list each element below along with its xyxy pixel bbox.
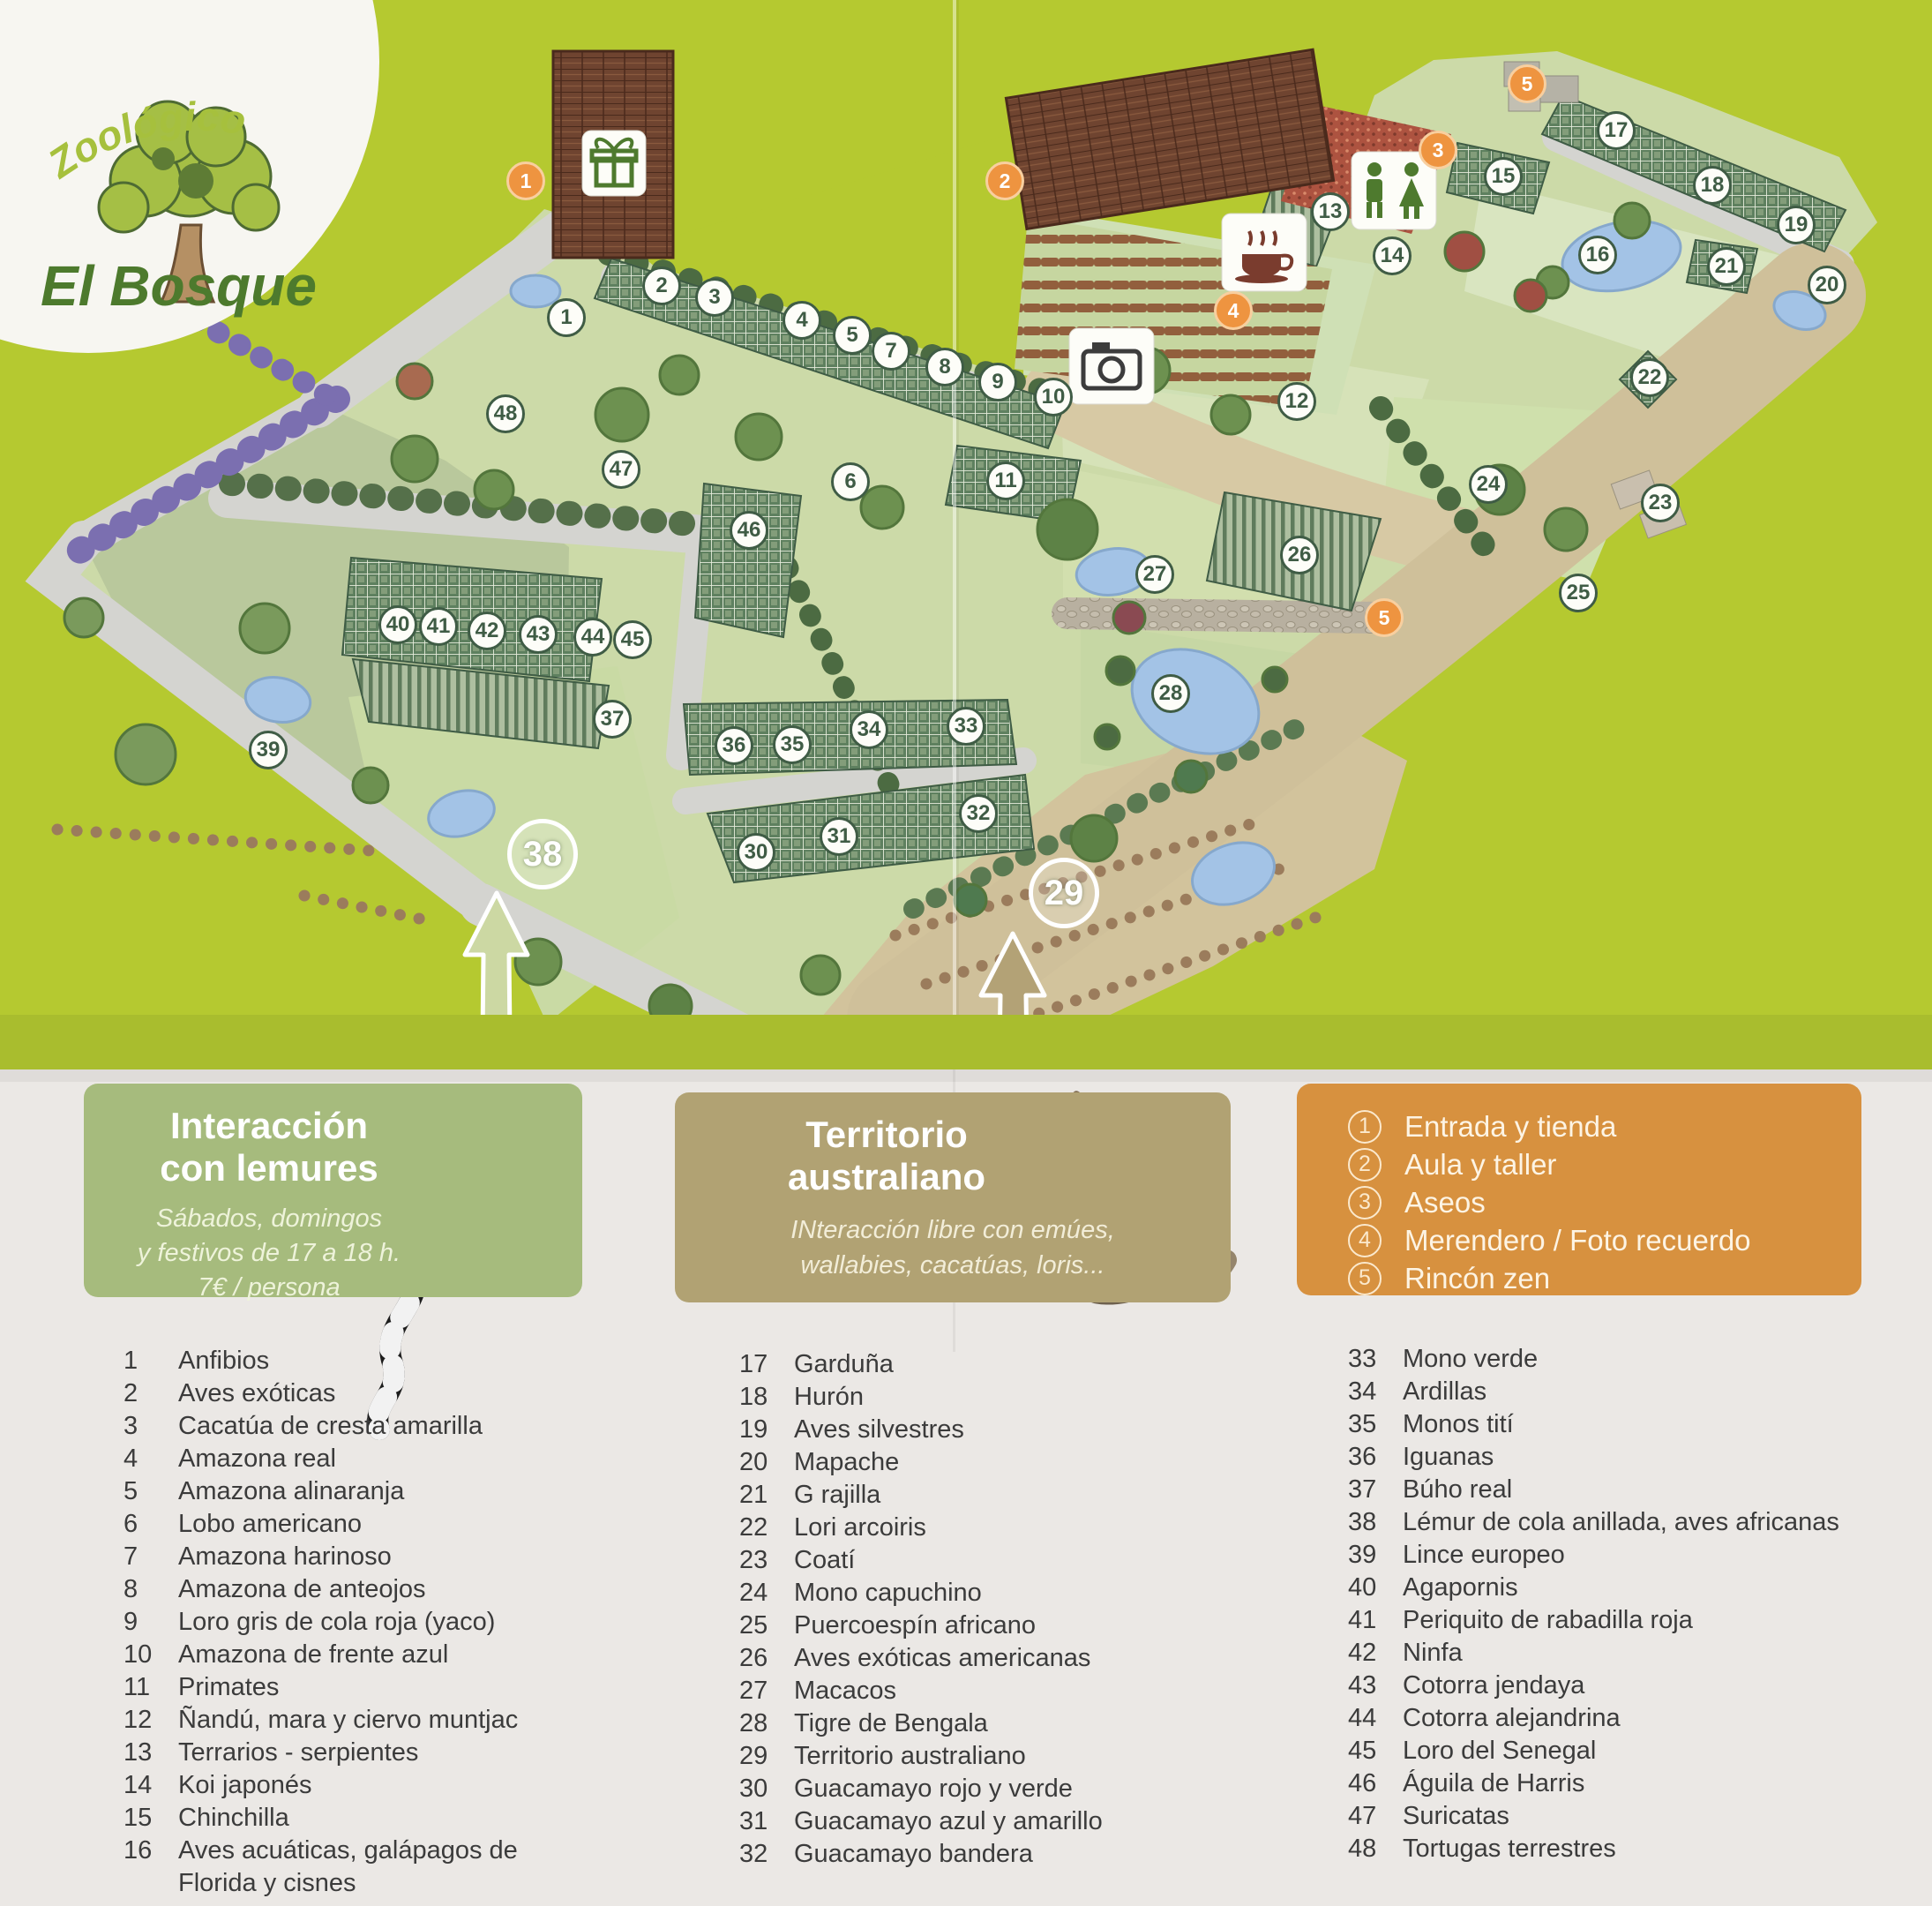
- facility-marker-number: 4: [1228, 299, 1239, 323]
- legend-item-number: 45: [1348, 1735, 1403, 1767]
- facility-row: 2 Aula y taller: [1348, 1148, 1751, 1181]
- enclosure-marker: 17: [1597, 111, 1636, 150]
- paper-fold: [953, 0, 959, 1069]
- enclosure-marker: 22: [1630, 358, 1669, 397]
- enclosure-marker-number: 5: [846, 323, 857, 348]
- legend-item-number: 27: [739, 1675, 794, 1707]
- enclosure-marker: 45: [613, 620, 652, 659]
- facilities-legend-box: 1 Entrada y tienda 2 Aula y taller 3 Ase…: [1297, 1084, 1861, 1295]
- enclosure-marker: 42: [468, 612, 506, 650]
- legend-item-label: Aves exóticas americanas: [794, 1642, 1217, 1675]
- legend-item: 18 Hurón: [739, 1381, 1217, 1414]
- legend-item-number: 6: [124, 1508, 178, 1541]
- legend-item-number: 41: [1348, 1604, 1403, 1637]
- enclosure-marker-number: 40: [386, 612, 410, 637]
- legend-item: 9 Loro gris de cola roja (yaco): [124, 1606, 602, 1639]
- enclosure-marker-number: 45: [621, 627, 645, 652]
- facility-row: 5 Rincón zen: [1348, 1262, 1751, 1294]
- facility-marker-number: 5: [1522, 72, 1533, 96]
- legend-item-label: Cotorra jendaya: [1403, 1670, 1914, 1702]
- enclosure-marker: 33: [947, 707, 985, 746]
- facilities-list: 1 Entrada y tienda 2 Aula y taller 3 Ase…: [1348, 1110, 1751, 1300]
- legend-item: 17 Garduña: [739, 1348, 1217, 1381]
- legend-item-number: 34: [1348, 1376, 1403, 1408]
- facility-label: Rincón zen: [1404, 1262, 1550, 1295]
- enclosure-marker-number: 11: [994, 469, 1016, 493]
- facility-marker: 4: [1214, 291, 1253, 330]
- facility-marker-number: 1: [520, 169, 532, 193]
- legend-item-number: 40: [1348, 1572, 1403, 1604]
- legend-item-label: Mono capuchino: [794, 1577, 1217, 1610]
- legend-item-number: 3: [124, 1410, 178, 1443]
- legend-item-number: 19: [739, 1414, 794, 1446]
- legend-item: 8 Amazona de anteojos: [124, 1573, 602, 1606]
- facility-number-badge: 1: [1348, 1110, 1382, 1144]
- legend-item-label: Terrarios - serpientes: [178, 1737, 602, 1769]
- legend-item-label: Monos tití: [1403, 1408, 1914, 1441]
- australian-territory-box: Territorio australiano INteracción libre…: [675, 1092, 1231, 1302]
- enclosure-marker: 3: [695, 278, 734, 317]
- legend-item: 14 Koi japonés: [124, 1769, 602, 1802]
- enclosure-marker: 7: [872, 332, 910, 371]
- gift-icon: [582, 131, 646, 196]
- enclosure-marker: 41: [419, 607, 458, 646]
- legend-item-number: 22: [739, 1512, 794, 1544]
- facility-row: 4 Merendero / Foto recuerdo: [1348, 1224, 1751, 1257]
- legend-item-label: Loro del Senegal: [1403, 1735, 1914, 1767]
- enclosure-marker-number: 48: [494, 401, 518, 426]
- area-marker-large: 29: [1029, 858, 1099, 928]
- facility-label: Entrada y tienda: [1404, 1110, 1616, 1144]
- legend-item-label: Guacamayo rojo y verde: [794, 1773, 1217, 1805]
- australian-box-description: INteracción libre con emúes, wallabies, …: [675, 1212, 1231, 1283]
- legend-item-label: Garduña: [794, 1348, 1217, 1381]
- legend-item-number: 28: [739, 1707, 794, 1740]
- legend-column-1: 1 Anfibios 2 Aves exóticas 3 Cacatúa de …: [124, 1345, 602, 1900]
- enclosure-marker: 14: [1373, 236, 1412, 275]
- legend-item-label: Hurón: [794, 1381, 1217, 1414]
- enclosure-marker-number: 20: [1816, 273, 1839, 297]
- legend-item-number: 8: [124, 1573, 178, 1606]
- enclosure-marker-number: 47: [610, 457, 633, 482]
- legend-item: 47 Suricatas: [1348, 1800, 1914, 1833]
- legend-item-label: Búho real: [1403, 1474, 1914, 1506]
- legend-item-number: 36: [1348, 1441, 1403, 1474]
- legend-item-number: 7: [124, 1541, 178, 1573]
- facility-marker: 3: [1419, 131, 1457, 169]
- lemur-box-price: 7€ / persona: [84, 1271, 454, 1305]
- facility-number-badge: 4: [1348, 1224, 1382, 1257]
- legend-item-label: Ñandú, mara y ciervo muntjac: [178, 1704, 602, 1737]
- legend-item-number: 15: [124, 1802, 178, 1835]
- enclosure-marker: 10: [1034, 378, 1073, 416]
- legend-item-number: 32: [739, 1838, 794, 1871]
- enclosure-marker-number: 33: [955, 714, 978, 739]
- legend-item-label: Iguanas: [1403, 1441, 1914, 1474]
- enclosure-marker-number: 15: [1492, 164, 1516, 189]
- legend-item-number: 14: [124, 1769, 178, 1802]
- legend-item-number: 25: [739, 1610, 794, 1642]
- enclosure-marker: 32: [959, 794, 998, 833]
- enclosure-marker: 47: [602, 450, 640, 489]
- enclosure-marker: 21: [1707, 247, 1746, 286]
- legend-item-number: 39: [1348, 1539, 1403, 1572]
- legend-item: 7 Amazona harinoso: [124, 1541, 602, 1573]
- enclosure-marker-number: 24: [1477, 472, 1501, 497]
- legend-item-label: Amazona real: [178, 1443, 602, 1475]
- lemur-box-schedule: Sábados, domingos y festivos de 17 a 18 …: [84, 1202, 454, 1305]
- enclosure-marker: 34: [850, 710, 888, 749]
- enclosure-marker: 5: [833, 316, 872, 355]
- legend-item-label: Ardillas: [1403, 1376, 1914, 1408]
- legend-item-label: Macacos: [794, 1675, 1217, 1707]
- legend-item: 29 Territorio australiano: [739, 1740, 1217, 1773]
- legend-item-label: Territorio australiano: [794, 1740, 1217, 1773]
- facility-row: 1 Entrada y tienda: [1348, 1110, 1751, 1143]
- legend-item: 13 Terrarios - serpientes: [124, 1737, 602, 1769]
- legend-item-number: 26: [739, 1642, 794, 1675]
- facility-label: Merendero / Foto recuerdo: [1404, 1224, 1751, 1257]
- legend-item: 16 Aves acuáticas, galápagos de Florida …: [124, 1835, 602, 1900]
- enclosure-marker: 4: [783, 301, 821, 340]
- facility-marker: 2: [985, 161, 1024, 200]
- legend-item-label: Amazona de anteojos: [178, 1573, 602, 1606]
- legend-item-label: Lémur de cola anillada, aves africanas: [1403, 1506, 1914, 1539]
- enclosure-marker: 48: [486, 394, 525, 433]
- legend-item-number: 24: [739, 1577, 794, 1610]
- legend-item-label: Cacatúa de cresta amarilla: [178, 1410, 602, 1443]
- enclosure-marker-number: 34: [857, 717, 881, 742]
- enclosure-marker: 23: [1641, 484, 1680, 522]
- legend-item-number: 33: [1348, 1343, 1403, 1376]
- legend-item-label: Aves exóticas: [178, 1377, 602, 1410]
- enclosure-marker-number: 21: [1715, 254, 1739, 279]
- lemur-interaction-box: Interacción con lemures Sábados, domingo…: [84, 1084, 582, 1297]
- legend-item-number: 47: [1348, 1800, 1403, 1833]
- enclosure-marker-number: 36: [723, 733, 746, 758]
- facility-marker: 5: [1365, 598, 1404, 637]
- legend-item: 45 Loro del Senegal: [1348, 1735, 1914, 1767]
- enclosure-marker-number: 16: [1586, 243, 1610, 267]
- enclosure-marker: 25: [1559, 574, 1598, 612]
- legend-column-3: 33 Mono verde 34 Ardillas 35 Monos tití …: [1348, 1343, 1914, 1865]
- enclosure-marker: 24: [1469, 465, 1508, 504]
- australian-box-title: Territorio australiano: [675, 1114, 1098, 1198]
- legend-item-label: Coatí: [794, 1544, 1217, 1577]
- legend-item: 44 Cotorra alejandrina: [1348, 1702, 1914, 1735]
- enclosure-marker-number: 27: [1143, 562, 1167, 587]
- legend-item-number: 18: [739, 1381, 794, 1414]
- legend-item-label: Aves silvestres: [794, 1414, 1217, 1446]
- area-marker-large: 38: [507, 819, 578, 889]
- enclosure-marker-number: 31: [827, 824, 851, 849]
- legend-item: 10 Amazona de frente azul: [124, 1639, 602, 1671]
- legend-item-label: G rajilla: [794, 1479, 1217, 1512]
- legend-item-number: 10: [124, 1639, 178, 1671]
- legend-item: 20 Mapache: [739, 1446, 1217, 1479]
- legend-item: 23 Coatí: [739, 1544, 1217, 1577]
- enclosure-marker-number: 18: [1701, 173, 1725, 198]
- enclosure-marker-number: 30: [745, 840, 768, 865]
- legend-item-number: 29: [739, 1740, 794, 1773]
- facility-marker-number: 2: [1000, 169, 1011, 193]
- facility-marker-number: 5: [1379, 606, 1390, 630]
- legend-item-number: 4: [124, 1443, 178, 1475]
- legend-item-number: 9: [124, 1606, 178, 1639]
- legend-item-label: Guacamayo bandera: [794, 1838, 1217, 1871]
- camera-icon: [1069, 328, 1154, 404]
- enclosure-marker: 43: [519, 615, 558, 654]
- enclosure-marker: 31: [820, 817, 858, 856]
- legend-item-number: 46: [1348, 1767, 1403, 1800]
- enclosure-marker-number: 7: [885, 339, 896, 364]
- facility-label: Aseos: [1404, 1186, 1486, 1219]
- enclosure-marker: 26: [1280, 536, 1319, 574]
- legend-item: 32 Guacamayo bandera: [739, 1838, 1217, 1871]
- legend-item: 19 Aves silvestres: [739, 1414, 1217, 1446]
- enclosure-marker-number: 10: [1042, 385, 1066, 409]
- enclosure-marker: 36: [715, 726, 753, 765]
- enclosure-marker-number: 13: [1319, 199, 1343, 224]
- legend-item: 33 Mono verde: [1348, 1343, 1914, 1376]
- legend-item: 36 Iguanas: [1348, 1441, 1914, 1474]
- enclosure-marker-number: 25: [1567, 581, 1591, 605]
- enclosure-marker: 11: [986, 461, 1025, 500]
- legend-item-label: Agapornis: [1403, 1572, 1914, 1604]
- logo-name-text: El Bosque: [41, 254, 317, 318]
- legend-item-number: 21: [739, 1479, 794, 1512]
- legend-item-label: Puercoespín africano: [794, 1610, 1217, 1642]
- legend-item: 34 Ardillas: [1348, 1376, 1914, 1408]
- legend-item-label: Guacamayo azul y amarillo: [794, 1805, 1217, 1838]
- legend-item-label: Mono verde: [1403, 1343, 1914, 1376]
- legend-item: 3 Cacatúa de cresta amarilla: [124, 1410, 602, 1443]
- legend-item: 35 Monos tití: [1348, 1408, 1914, 1441]
- enclosure-marker: 28: [1151, 674, 1190, 713]
- enclosure-marker-number: 12: [1285, 389, 1309, 414]
- enclosure-marker-number: 19: [1785, 213, 1808, 237]
- enclosure-marker: 1: [547, 298, 586, 337]
- legend-item-number: 35: [1348, 1408, 1403, 1441]
- enclosure-marker: 20: [1808, 266, 1846, 304]
- enclosure-marker: 46: [730, 511, 768, 550]
- legend-item: 40 Agapornis: [1348, 1572, 1914, 1604]
- enclosure-marker: 15: [1484, 157, 1523, 196]
- enclosure-marker-number: 32: [967, 801, 991, 826]
- legend-item-label: Águila de Harris: [1403, 1767, 1914, 1800]
- legend-item-number: 16: [124, 1835, 178, 1867]
- legend-item-number: 42: [1348, 1637, 1403, 1670]
- legend-item: 43 Cotorra jendaya: [1348, 1670, 1914, 1702]
- enclosure-marker: 18: [1693, 166, 1732, 205]
- enclosure-marker-number: 22: [1638, 365, 1662, 390]
- legend-item-label: Aves acuáticas, galápagos de Florida y c…: [178, 1835, 602, 1900]
- facility-number-badge: 3: [1348, 1186, 1382, 1219]
- enclosure-marker: 12: [1277, 382, 1316, 421]
- legend-item-number: 13: [124, 1737, 178, 1769]
- enclosure-marker-number: 46: [738, 518, 761, 543]
- facility-marker-number: 3: [1433, 139, 1444, 162]
- legend-item: 38 Lémur de cola anillada, aves africana…: [1348, 1506, 1914, 1539]
- enclosure-marker-number: 41: [427, 614, 451, 639]
- legend-item-label: Amazona de frente azul: [178, 1639, 602, 1671]
- legend-item-number: 38: [1348, 1506, 1403, 1539]
- legend-item-label: Lobo americano: [178, 1508, 602, 1541]
- legend-item-label: Loro gris de cola roja (yaco): [178, 1606, 602, 1639]
- lemur-box-title: Interacción con lemures: [84, 1105, 454, 1189]
- legend-item-number: 20: [739, 1446, 794, 1479]
- legend-item: 24 Mono capuchino: [739, 1577, 1217, 1610]
- legend-item-label: Amazona alinaranja: [178, 1475, 602, 1508]
- legend-item: 48 Tortugas terrestres: [1348, 1833, 1914, 1865]
- legend-item: 5 Amazona alinaranja: [124, 1475, 602, 1508]
- legend-item: 31 Guacamayo azul y amarillo: [739, 1805, 1217, 1838]
- enclosure-marker-number: 39: [257, 738, 281, 762]
- facility-marker: 1: [506, 161, 545, 200]
- enclosure-marker-number: 37: [601, 707, 625, 732]
- enclosure-marker: 35: [773, 725, 812, 764]
- coffee-icon: [1222, 214, 1307, 291]
- legend-item: 39 Lince europeo: [1348, 1539, 1914, 1572]
- legend-item-label: Tortugas terrestres: [1403, 1833, 1914, 1865]
- enclosure-marker: 16: [1578, 236, 1617, 274]
- legend-item-number: 43: [1348, 1670, 1403, 1702]
- legend-item: 28 Tigre de Bengala: [739, 1707, 1217, 1740]
- legend-item-number: 30: [739, 1773, 794, 1805]
- facility-marker: 5: [1508, 64, 1546, 103]
- legend-item-label: Periquito de rabadilla roja: [1403, 1604, 1914, 1637]
- area-marker-number: 38: [523, 835, 563, 874]
- enclosure-marker: 6: [831, 462, 870, 501]
- legend-item-number: 1: [124, 1345, 178, 1377]
- legend-item: 27 Macacos: [739, 1675, 1217, 1707]
- zoo-brochure-map: Zoológico El Bosque: [0, 0, 1932, 1906]
- legend-item-number: 2: [124, 1377, 178, 1410]
- legend-item-label: Amazona harinoso: [178, 1541, 602, 1573]
- legend-item-number: 44: [1348, 1702, 1403, 1735]
- legend-item-label: Suricatas: [1403, 1800, 1914, 1833]
- legend-item: 12 Ñandú, mara y ciervo muntjac: [124, 1704, 602, 1737]
- legend-item-number: 23: [739, 1544, 794, 1577]
- legend-item: 1 Anfibios: [124, 1345, 602, 1377]
- enclosure-marker: 39: [249, 731, 288, 769]
- enclosure-marker-number: 26: [1288, 543, 1312, 567]
- legend-item-number: 5: [124, 1475, 178, 1508]
- legend-item: 21 G rajilla: [739, 1479, 1217, 1512]
- legend-item: 25 Puercoespín africano: [739, 1610, 1217, 1642]
- enclosure-marker-number: 17: [1605, 118, 1629, 143]
- legend-item-number: 31: [739, 1805, 794, 1838]
- enclosure-marker-number: 35: [781, 732, 805, 757]
- enclosure-marker-number: 43: [527, 622, 550, 647]
- legend-item: 15 Chinchilla: [124, 1802, 602, 1835]
- legend-item: 46 Águila de Harris: [1348, 1767, 1914, 1800]
- legend-item-label: Cotorra alejandrina: [1403, 1702, 1914, 1735]
- legend-item-label: Lince europeo: [1403, 1539, 1914, 1572]
- enclosure-marker-number: 2: [655, 274, 667, 298]
- legend-item: 11 Primates: [124, 1671, 602, 1704]
- legend-item-label: Primates: [178, 1671, 602, 1704]
- enclosure-marker-number: 1: [560, 305, 572, 330]
- legend-item-number: 17: [739, 1348, 794, 1381]
- legend-item-label: Tigre de Bengala: [794, 1707, 1217, 1740]
- legend-item-number: 37: [1348, 1474, 1403, 1506]
- legend-item-label: Chinchilla: [178, 1802, 602, 1835]
- enclosure-marker: 44: [573, 618, 612, 657]
- enclosure-marker: 40: [378, 605, 417, 644]
- legend-item-label: Ninfa: [1403, 1637, 1914, 1670]
- legend-item: 6 Lobo americano: [124, 1508, 602, 1541]
- enclosure-marker-number: 6: [844, 469, 856, 494]
- enclosure-marker: 9: [978, 363, 1017, 401]
- facility-number-badge: 5: [1348, 1262, 1382, 1295]
- legend-item: 2 Aves exóticas: [124, 1377, 602, 1410]
- legend-item: 41 Periquito de rabadilla roja: [1348, 1604, 1914, 1637]
- enclosure-marker-number: 28: [1159, 681, 1183, 706]
- facility-label: Aula y taller: [1404, 1148, 1556, 1182]
- enclosure-marker-number: 8: [939, 355, 950, 379]
- facility-number-badge: 2: [1348, 1148, 1382, 1182]
- enclosure-marker: 37: [593, 700, 632, 739]
- legend-item: 4 Amazona real: [124, 1443, 602, 1475]
- legend-item: 26 Aves exóticas americanas: [739, 1642, 1217, 1675]
- enclosure-marker: 27: [1135, 555, 1174, 594]
- enclosure-marker-number: 4: [796, 308, 807, 333]
- enclosure-marker: 13: [1311, 192, 1350, 231]
- facility-row: 3 Aseos: [1348, 1186, 1751, 1219]
- legend-item-label: Anfibios: [178, 1345, 602, 1377]
- legend-item: 37 Búho real: [1348, 1474, 1914, 1506]
- legend-item-number: 11: [124, 1671, 178, 1704]
- legend-item-label: Koi japonés: [178, 1769, 602, 1802]
- enclosure-marker-number: 23: [1649, 491, 1673, 515]
- legend-item-label: Mapache: [794, 1446, 1217, 1479]
- legend-item-number: 12: [124, 1704, 178, 1737]
- legend-column-2: 17 Garduña 18 Hurón 19 Aves silvestres 2…: [739, 1348, 1217, 1871]
- enclosure-marker: 30: [737, 833, 775, 872]
- legend-item: 22 Lori arcoiris: [739, 1512, 1217, 1544]
- enclosure-marker-number: 3: [708, 285, 720, 310]
- enclosure-marker-number: 14: [1381, 244, 1404, 268]
- enclosure-marker-number: 42: [476, 619, 499, 643]
- enclosure-marker-number: 9: [992, 370, 1003, 394]
- legend-item-label: Lori arcoiris: [794, 1512, 1217, 1544]
- enclosure-marker: 19: [1777, 206, 1816, 244]
- legend-item: 42 Ninfa: [1348, 1637, 1914, 1670]
- enclosure-marker: 2: [642, 266, 681, 305]
- legend-item-number: 48: [1348, 1833, 1403, 1865]
- enclosure-marker-number: 44: [581, 625, 605, 649]
- legend-item: 30 Guacamayo rojo y verde: [739, 1773, 1217, 1805]
- enclosure-marker: 8: [925, 348, 964, 386]
- area-marker-number: 29: [1045, 874, 1084, 913]
